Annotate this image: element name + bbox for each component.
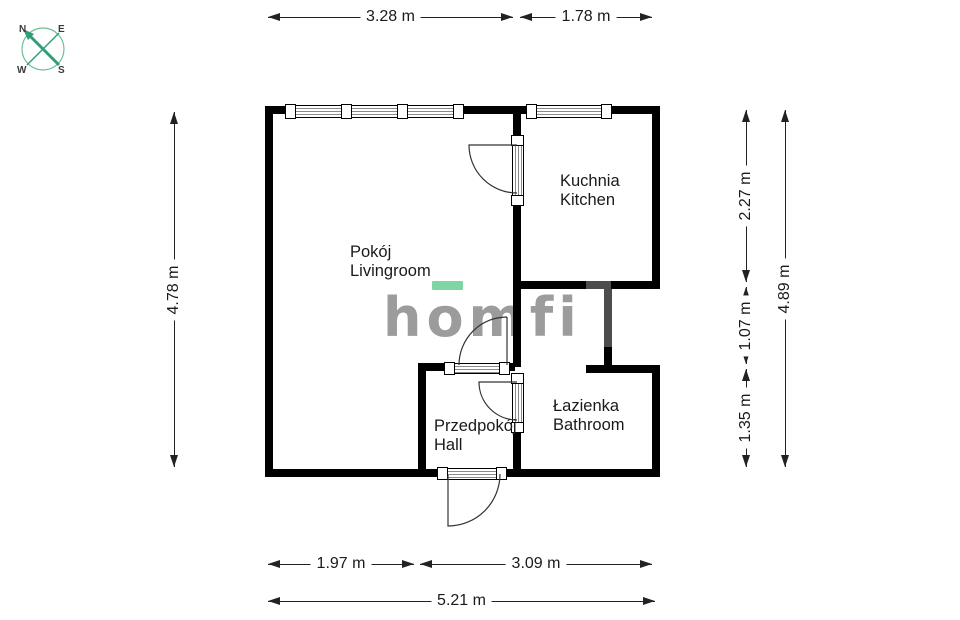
dimension-value: 3.28 m	[360, 8, 421, 26]
room-label-hall-en: Hall	[434, 436, 517, 455]
dimension-right-total-height: 4.89 m	[777, 110, 795, 467]
arrowhead-right	[501, 13, 513, 21]
floor-plan: N E W S homfi	[0, 0, 960, 620]
room-label-livingroom-pl: Pokój	[350, 243, 431, 262]
dimension-bottom-left-width: 1.97 m	[268, 556, 414, 574]
dimension-value: 2.27 m	[737, 166, 755, 227]
arrowhead-down	[781, 455, 789, 467]
room-label-bathroom-pl: Łazienka	[553, 397, 625, 416]
dimension-bottom-right-width: 3.09 m	[420, 556, 652, 574]
arrowhead-right	[640, 13, 652, 21]
dimension-value: 1.78 m	[556, 8, 617, 26]
dimension-bottom-total-width: 5.21 m	[268, 593, 655, 611]
dimension-value: 4.89 m	[776, 258, 794, 319]
arrowhead-up	[170, 112, 178, 124]
arrowhead-left	[520, 13, 532, 21]
dimension-right-bathroom-height: 1.35 m	[738, 369, 756, 467]
room-label-kitchen-en: Kitchen	[560, 191, 620, 210]
room-label-livingroom-en: Livingroom	[350, 262, 431, 281]
arrowhead-right	[643, 597, 655, 605]
dimension-top-kitchen-width: 1.78 m	[520, 9, 652, 27]
arrowhead-down	[742, 455, 750, 467]
room-label-kitchen-pl: Kuchnia	[560, 172, 620, 191]
arrowhead-down	[742, 270, 750, 282]
arrowhead-left	[268, 560, 280, 568]
dimension-value: 1.35 m	[737, 388, 755, 449]
arrowhead-left	[420, 560, 432, 568]
door-swing-arcs	[0, 0, 960, 620]
dimension-value: 4.78 m	[165, 259, 183, 320]
room-label-hall: Przedpokój Hall	[434, 417, 517, 456]
dimension-value: 3.09 m	[506, 555, 567, 573]
dimension-left-total-height: 4.78 m	[166, 112, 184, 467]
room-label-hall-pl: Przedpokój	[434, 417, 517, 436]
room-label-bathroom: Łazienka Bathroom	[553, 397, 625, 436]
arrowhead-up	[781, 110, 789, 122]
dimension-top-livingroom-width: 3.28 m	[268, 9, 513, 27]
arrowhead-down	[170, 455, 178, 467]
door-entrance-swing-arc	[448, 474, 500, 526]
door-hall-swing-arc	[459, 317, 507, 365]
dimension-right-kitchen-height: 2.27 m	[738, 110, 756, 282]
dimension-value: 1.07 m	[737, 295, 755, 356]
arrowhead-left	[268, 597, 280, 605]
room-label-bathroom-en: Bathroom	[553, 416, 625, 435]
dimension-right-middle-height: 1.07 m	[738, 287, 756, 364]
arrowhead-left	[268, 13, 280, 21]
door-bathroom-swing-arc	[479, 382, 517, 420]
room-label-kitchen: Kuchnia Kitchen	[560, 172, 620, 211]
room-label-livingroom: Pokój Livingroom	[350, 243, 431, 282]
arrowhead-up	[742, 110, 750, 122]
dimension-value: 5.21 m	[431, 592, 492, 610]
arrowhead-right	[402, 560, 414, 568]
dimension-value: 1.97 m	[311, 555, 372, 573]
door-kitchen-swing-arc	[469, 145, 517, 193]
arrowhead-right	[640, 560, 652, 568]
arrowhead-up	[742, 369, 750, 381]
